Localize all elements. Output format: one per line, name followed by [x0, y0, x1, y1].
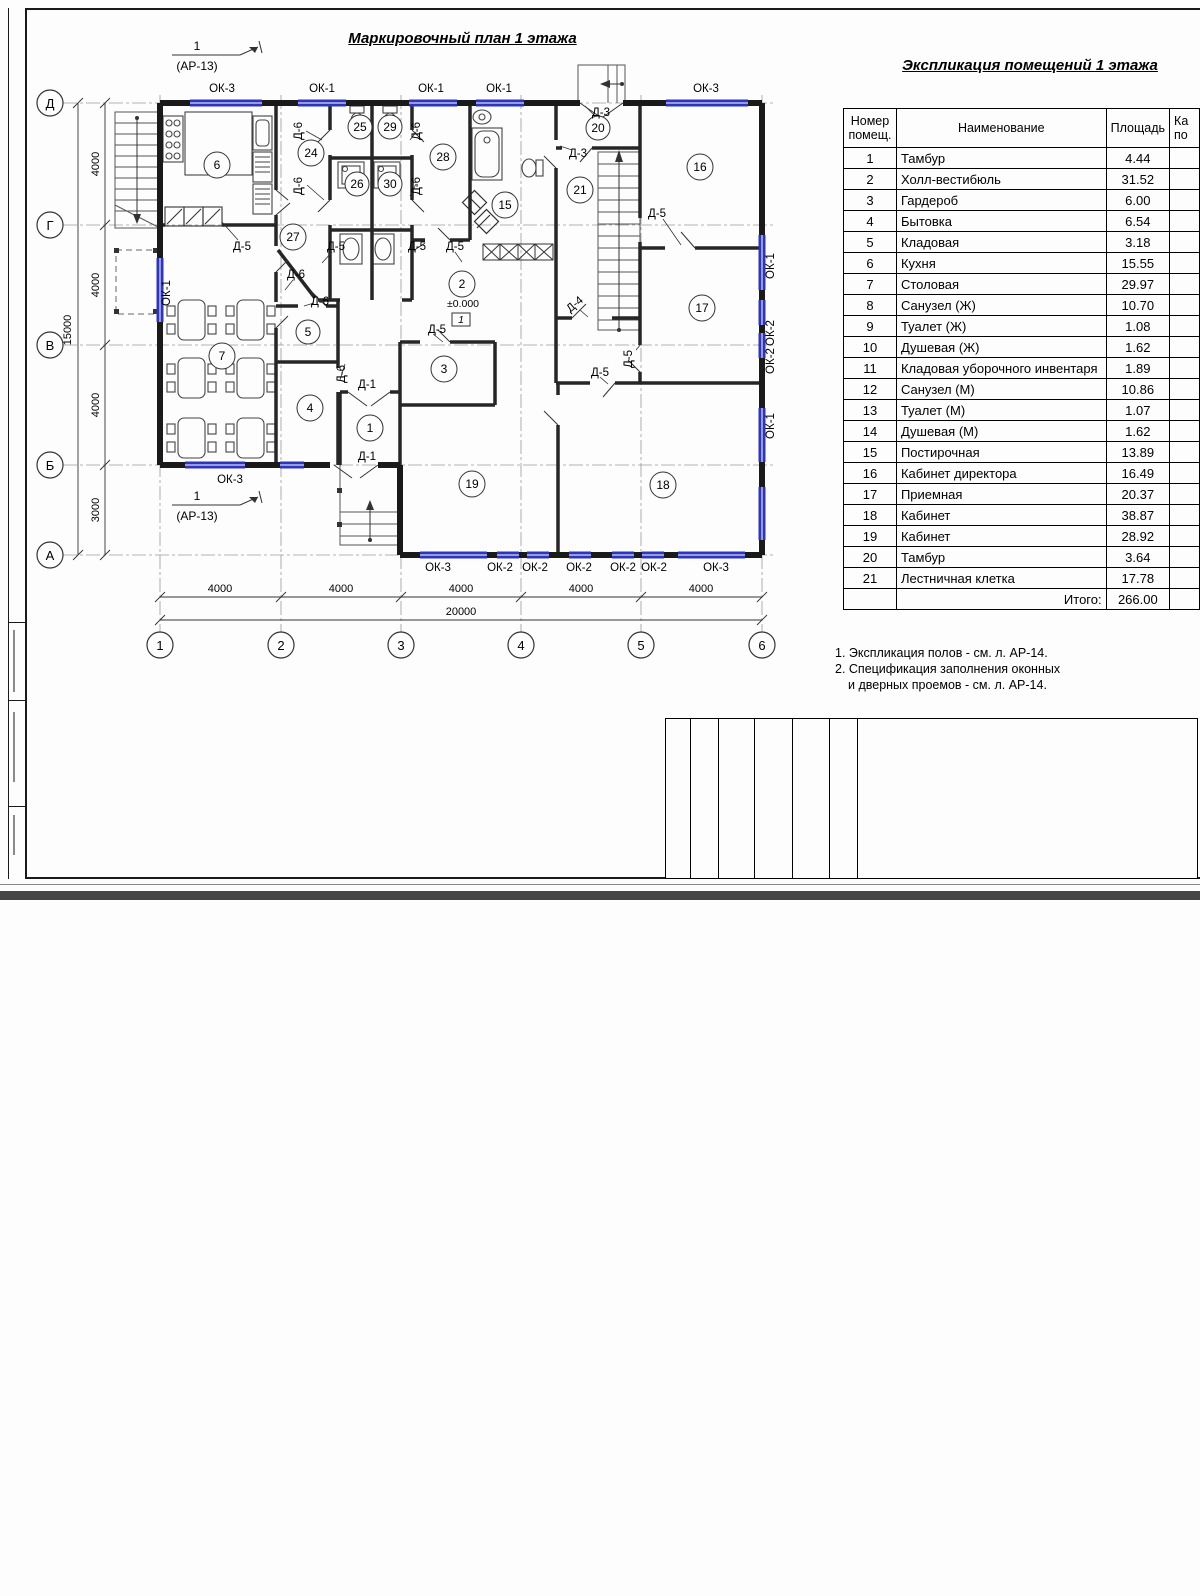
bottom-porch-arrow [366, 500, 374, 510]
room-number-cell: 5 [844, 232, 897, 253]
room-category-cell [1170, 379, 1200, 400]
window-label: ОК-2 [765, 348, 777, 374]
tb-grid [830, 719, 858, 878]
col-header-number: Номерпомещ. [844, 109, 897, 148]
room-number-cell: 16 [844, 463, 897, 484]
kitchen-hatch-squares [165, 207, 222, 226]
room-area-cell: 4.44 [1106, 148, 1169, 169]
room-category-cell [1170, 190, 1200, 211]
room-bubble: 16 [693, 160, 707, 174]
room-name-cell: Душевая (Ж) [896, 337, 1106, 358]
room-bubble: 4 [307, 401, 314, 415]
dim-left-total: 15000 [62, 315, 74, 346]
room-area-cell: 1.08 [1106, 316, 1169, 337]
room-area-cell: 1.62 [1106, 337, 1169, 358]
room-area-cell: 28.92 [1106, 526, 1169, 547]
window-label: ОК-1 [309, 83, 335, 95]
window-label: ОК-3 [425, 562, 451, 574]
table-row: 5 Кладовая 3.18 [844, 232, 1200, 253]
room-number-cell: 13 [844, 400, 897, 421]
table-row: 17 Приемная 20.37 [844, 484, 1200, 505]
interior-stair [598, 152, 640, 332]
room-number-cell: 20 [844, 547, 897, 568]
window-label: ОК-2 [566, 562, 592, 574]
title-block: Изм. Кол. Лист №док. Подпись Дата Разраб… [665, 718, 1198, 879]
room-area-cell: 17.78 [1106, 568, 1169, 589]
room-area-cell: 1.07 [1106, 400, 1169, 421]
room-bubble: 30 [383, 177, 397, 191]
dim-bottom-total: 20000 [446, 606, 477, 618]
explication-title: Экспликация помещений 1 этажа [880, 57, 1180, 74]
door-label: Д-5 [446, 241, 464, 253]
table-row: 19 Кабинет 28.92 [844, 526, 1200, 547]
window-label: ОК-1 [765, 413, 777, 439]
table-row: 13 Туалет (М) 1.07 [844, 400, 1200, 421]
shower-diamonds [462, 190, 498, 233]
dim-left-2: 4000 [90, 273, 102, 297]
table-row: 21 Лестничная клетка 17.78 [844, 568, 1200, 589]
room-category-cell [1170, 316, 1200, 337]
table-row: 3 Гардероб 6.00 [844, 190, 1200, 211]
room-name-cell: Туалет (Ж) [896, 316, 1106, 337]
door-label: Д-5 [327, 241, 345, 253]
room-number-cell: 6 [844, 253, 897, 274]
room-area-cell: 10.86 [1106, 379, 1169, 400]
section-marker-bottom: 1 (АР-13) [172, 489, 262, 523]
room-name-cell: Кладовая уборочного инвентаря [896, 358, 1106, 379]
note-1: 1. Экспликация полов - см. л. АР-14. [835, 645, 1060, 661]
axis-number: 1 [156, 638, 163, 653]
table-row: 18 Кабинет 38.87 [844, 505, 1200, 526]
table-row: 7 Столовая 29.97 [844, 274, 1200, 295]
dim-bottom-4: 4000 [569, 583, 593, 595]
room-number-cell: 4 [844, 211, 897, 232]
door-label: Д-6 [293, 122, 305, 140]
room-category-cell [1170, 274, 1200, 295]
room-name-cell: Кладовая [896, 232, 1106, 253]
window-label: ОК-1 [765, 253, 777, 279]
section-ref: (АР-13) [176, 509, 217, 523]
exterior-stair [115, 112, 160, 228]
room-number-cell: 3 [844, 190, 897, 211]
level-mark: ±0.000 1 [447, 298, 479, 326]
room-area-cell: 6.00 [1106, 190, 1169, 211]
col-header-category: Капо [1170, 109, 1200, 148]
door-label: Д-5 [623, 350, 635, 368]
exterior-stair-arrow [133, 214, 141, 224]
room-bubble: 26 [350, 177, 364, 191]
room-name-cell: Тамбур [896, 148, 1106, 169]
room-name-cell: Постирочная [896, 442, 1106, 463]
room-bubble: 7 [219, 349, 226, 363]
room-area-cell: 29.97 [1106, 274, 1169, 295]
room-number-cell: 18 [844, 505, 897, 526]
room-category-cell [1170, 547, 1200, 568]
table-row: 8 Санузел (Ж) 10.70 [844, 295, 1200, 316]
table-row: 20 Тамбур 3.64 [844, 547, 1200, 568]
axis-number: 2 [277, 638, 284, 653]
door-label: Д-6 [287, 269, 305, 281]
dim-bottom-5: 4000 [689, 583, 713, 595]
floor-type-number: 1 [458, 314, 464, 326]
window-label: ОК-1 [486, 83, 512, 95]
door-label: Д-6 [411, 122, 423, 140]
explication-body: 1 Тамбур 4.44 2 Холл-вестибюль 31.52 3 Г… [844, 148, 1200, 589]
table-row: 4 Бытовка 6.54 [844, 211, 1200, 232]
axis-letter: А [46, 548, 55, 563]
total-row: Итого: 266.00 [844, 589, 1200, 610]
window-label: ОК-3 [703, 562, 729, 574]
canopy-dashed-outline [116, 250, 158, 314]
room-name-cell: Кухня [896, 253, 1106, 274]
table-row: 10 Душевая (Ж) 1.62 [844, 337, 1200, 358]
window-label: ОК-1 [418, 83, 444, 95]
bench-hatched [483, 244, 553, 260]
room-number-cell: 14 [844, 421, 897, 442]
room-category-cell [1170, 505, 1200, 526]
axis-number: 4 [517, 638, 524, 653]
room-number-cell: 1 [844, 148, 897, 169]
room-bubble: 5 [305, 325, 312, 339]
total-category-cell [1170, 589, 1200, 610]
axis-number: 6 [758, 638, 765, 653]
tb-grid [793, 719, 830, 878]
room-name-cell: Приемная [896, 484, 1106, 505]
scan-edge-strip [0, 891, 1200, 900]
door-label: Д-1 [358, 451, 376, 463]
room-number-cell: 11 [844, 358, 897, 379]
room-number-cell: 19 [844, 526, 897, 547]
section-marker-top: 1 (АР-13) [172, 39, 262, 73]
dim-left-1: 4000 [90, 152, 102, 176]
dim-bottom-3: 4000 [449, 583, 473, 595]
table-row: 14 Душевая (М) 1.62 [844, 421, 1200, 442]
room-name-cell: Лестничная клетка [896, 568, 1106, 589]
tb-grid [755, 719, 793, 878]
room-name-cell: Кабинет [896, 526, 1106, 547]
room-bubble: 2 [459, 277, 466, 291]
room-category-cell [1170, 568, 1200, 589]
tb-grid [719, 719, 755, 878]
note-2-cont: и дверных проемов - см. л. АР-14. [835, 677, 1060, 693]
door-label: Д-3 [592, 107, 610, 119]
col-header-area: Площадь [1106, 109, 1169, 148]
room-area-cell: 15.55 [1106, 253, 1169, 274]
window-label: ОК-3 [693, 83, 719, 95]
top-porch-arrow [600, 80, 610, 88]
room-bubble: 27 [286, 230, 300, 244]
room-number-cell: 8 [844, 295, 897, 316]
room-number-cell: 10 [844, 337, 897, 358]
table-row: 6 Кухня 15.55 [844, 253, 1200, 274]
room-name-cell: Тамбур [896, 547, 1106, 568]
door-label: Д-6 [336, 365, 348, 383]
explication-table: Номерпомещ. Наименование Площадь Капо 1 … [843, 108, 1200, 610]
side-stamp-divider-2 [8, 700, 25, 701]
room-name-cell: Гардероб [896, 190, 1106, 211]
room-category-cell [1170, 337, 1200, 358]
table-row: 1 Тамбур 4.44 [844, 148, 1200, 169]
floor-plan: 4000 4000 4000 3000 15000 4000 4000 4000… [0, 0, 830, 680]
room-category-cell [1170, 442, 1200, 463]
axis-letter: Г [46, 218, 53, 233]
room-category-cell [1170, 400, 1200, 421]
room-bubble: 29 [383, 120, 397, 134]
notes: 1. Экспликация полов - см. л. АР-14. 2. … [835, 645, 1060, 693]
room-name-cell: Душевая (М) [896, 421, 1106, 442]
room-category-cell [1170, 295, 1200, 316]
room-bubble: 25 [353, 120, 367, 134]
tb-grid [691, 719, 719, 878]
door-label: Д-6 [311, 296, 329, 308]
window-label: ОК-2 [522, 562, 548, 574]
room-number-cell: 12 [844, 379, 897, 400]
room-name-cell: Холл-вестибюль [896, 169, 1106, 190]
door-label: Д-5 [591, 367, 609, 379]
room-category-cell [1170, 232, 1200, 253]
door-label: Д-5 [408, 241, 426, 253]
dim-bottom-1: 4000 [208, 583, 232, 595]
room-area-cell: 20.37 [1106, 484, 1169, 505]
window-label: ОК-2 [610, 562, 636, 574]
room-name-cell: Бытовка [896, 211, 1106, 232]
scan-edge-line [0, 884, 1200, 885]
section-number: 1 [194, 489, 201, 503]
axis-letter: Д [46, 96, 55, 111]
table-row: 9 Туалет (Ж) 1.08 [844, 316, 1200, 337]
room-name-cell: Санузел (М) [896, 379, 1106, 400]
room-bubble: 19 [465, 477, 479, 491]
room-area-cell: 6.54 [1106, 211, 1169, 232]
room-category-cell [1170, 463, 1200, 484]
room-category-cell [1170, 526, 1200, 547]
room-area-cell: 38.87 [1106, 505, 1169, 526]
side-stamp-text-mark-3 [13, 815, 15, 855]
dining-tables [167, 300, 275, 458]
axis-letter: Б [46, 458, 55, 473]
room-category-cell [1170, 484, 1200, 505]
door-label: Д-6 [293, 177, 305, 195]
dim-left-3: 4000 [90, 393, 102, 417]
room-bubble: 20 [591, 121, 605, 135]
room-category-cell [1170, 421, 1200, 442]
room-number-cell: 21 [844, 568, 897, 589]
room-bubble: 1 [367, 421, 374, 435]
room-area-cell: 1.89 [1106, 358, 1169, 379]
room-number-cell: 2 [844, 169, 897, 190]
window-label: ОК-3 [217, 474, 243, 486]
room-area-cell: 13.89 [1106, 442, 1169, 463]
room-category-cell [1170, 169, 1200, 190]
total-label-cell: Итого: [896, 589, 1106, 610]
col-header-name: Наименование [896, 109, 1106, 148]
door-label: Д-3 [569, 148, 587, 160]
door-label: Д-5 [233, 241, 251, 253]
dim-left-4: 3000 [90, 498, 102, 522]
room-category-cell [1170, 211, 1200, 232]
room-bubble: 17 [695, 301, 709, 315]
room-bubble: 28 [436, 150, 450, 164]
side-stamp-divider-3 [8, 806, 25, 807]
door-label: Д-5 [428, 324, 446, 336]
door-label: Д-1 [358, 379, 376, 391]
room-name-cell: Санузел (Ж) [896, 295, 1106, 316]
tb-grid [666, 719, 691, 878]
room-bubble: 21 [573, 183, 587, 197]
side-stamp-text-mark-2 [13, 712, 15, 782]
room-category-cell [1170, 253, 1200, 274]
window-label: ОК-2 [765, 320, 777, 346]
door-label: Д-5 [648, 208, 666, 220]
section-ref: (АР-13) [176, 59, 217, 73]
table-row: 16 Кабинет директора 16.49 [844, 463, 1200, 484]
room-number-cell: 15 [844, 442, 897, 463]
canopy-posts [114, 248, 158, 314]
room-number-cell: 9 [844, 316, 897, 337]
room-number-cell: 7 [844, 274, 897, 295]
room-category-cell [1170, 148, 1200, 169]
total-value-cell: 266.00 [1106, 589, 1169, 610]
room-bubble: 24 [304, 146, 318, 160]
room-number-cell: 17 [844, 484, 897, 505]
door-label: Д-4 [564, 294, 586, 315]
room-name-cell: Туалет (М) [896, 400, 1106, 421]
room-area-cell: 10.70 [1106, 295, 1169, 316]
table-row: 15 Постирочная 13.89 [844, 442, 1200, 463]
section-number: 1 [194, 39, 201, 53]
table-row: 11 Кладовая уборочного инвентаря 1.89 [844, 358, 1200, 379]
axis-number: 3 [397, 638, 404, 653]
level-mark-text: ±0.000 [447, 298, 479, 310]
room-area-cell: 3.64 [1106, 547, 1169, 568]
axis-letter: В [46, 338, 55, 353]
room-bubble: 3 [441, 362, 448, 376]
room-bubble: 18 [656, 478, 670, 492]
room-name-cell: Кабинет директора [896, 463, 1106, 484]
table-row: 2 Холл-вестибюль 31.52 [844, 169, 1200, 190]
room-name-cell: Кабинет [896, 505, 1106, 526]
explication-header-row: Номерпомещ. Наименование Площадь Капо [844, 109, 1200, 148]
window-label: ОК-1 [161, 280, 173, 306]
room-area-cell: 16.49 [1106, 463, 1169, 484]
axis-number: 5 [637, 638, 644, 653]
room-area-cell: 1.62 [1106, 421, 1169, 442]
window-label: ОК-3 [209, 83, 235, 95]
total-empty-cell [844, 589, 897, 610]
dim-bottom-2: 4000 [329, 583, 353, 595]
note-2: 2. Спецификация заполнения оконных [835, 661, 1060, 677]
room-area-cell: 3.18 [1106, 232, 1169, 253]
room-area-cell: 31.52 [1106, 169, 1169, 190]
room-bubble: 15 [498, 198, 512, 212]
door-label: Д-6 [411, 177, 423, 195]
window-label: ОК-2 [487, 562, 513, 574]
window-label: ОК-2 [641, 562, 667, 574]
room-category-cell [1170, 358, 1200, 379]
room-name-cell: Столовая [896, 274, 1106, 295]
table-row: 12 Санузел (М) 10.86 [844, 379, 1200, 400]
room-bubble: 6 [214, 158, 221, 172]
